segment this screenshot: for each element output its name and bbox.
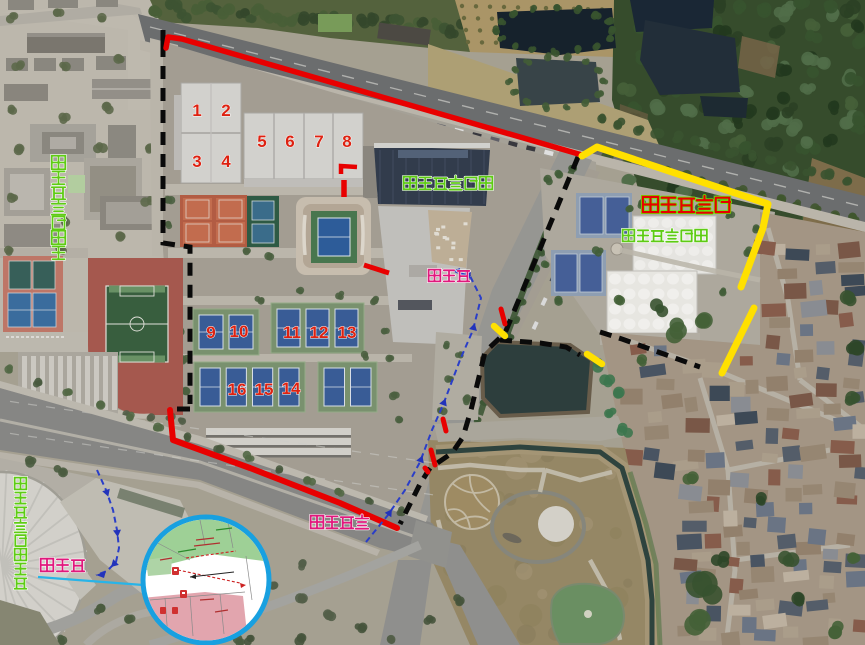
- svg-text:2: 2: [221, 101, 230, 120]
- svg-text:13: 13: [338, 323, 357, 342]
- svg-text:14: 14: [282, 379, 301, 398]
- svg-text:8: 8: [342, 132, 351, 151]
- svg-text:5: 5: [257, 132, 266, 151]
- svg-text:3: 3: [192, 152, 201, 171]
- svg-text:7: 7: [314, 132, 323, 151]
- svg-text:6: 6: [285, 132, 294, 151]
- svg-text:4: 4: [221, 152, 231, 171]
- svg-text:16: 16: [228, 380, 247, 399]
- svg-text:9: 9: [206, 323, 215, 342]
- svg-text:15: 15: [255, 380, 274, 399]
- svg-text:12: 12: [310, 323, 329, 342]
- svg-text:10: 10: [230, 322, 249, 341]
- svg-text:11: 11: [283, 323, 301, 342]
- svg-text:1: 1: [192, 101, 201, 120]
